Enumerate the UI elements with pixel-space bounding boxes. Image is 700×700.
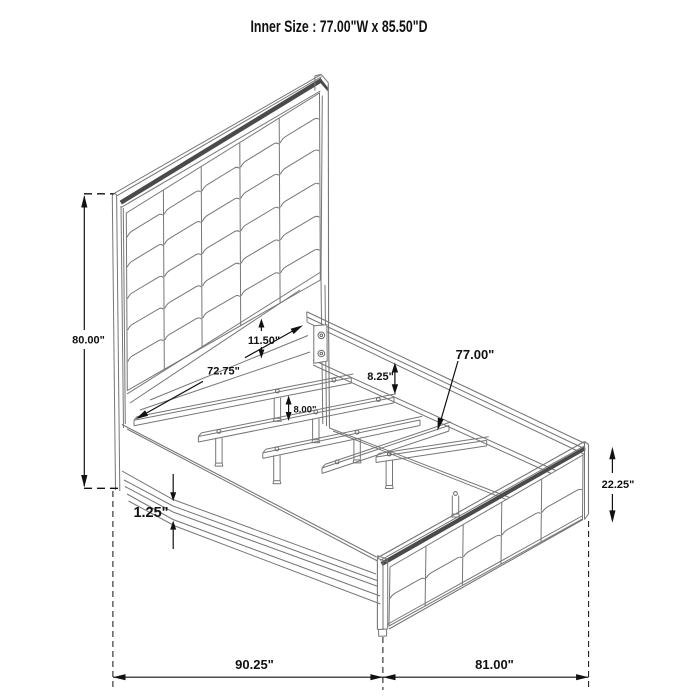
svg-text:80.00": 80.00" (72, 335, 105, 347)
svg-text:77.00": 77.00" (456, 347, 495, 362)
svg-text:81.00": 81.00" (475, 657, 514, 672)
svg-text:90.25": 90.25" (235, 657, 274, 672)
svg-text:11.50": 11.50" (248, 335, 280, 347)
svg-text:8.25": 8.25" (367, 371, 394, 383)
svg-text:22.25": 22.25" (602, 479, 635, 491)
svg-text:1.25": 1.25" (133, 505, 168, 521)
svg-text:Inner Size : 77.00"W x 85.50"D: Inner Size : 77.00"W x 85.50"D (251, 18, 428, 36)
svg-text:72.75": 72.75" (207, 366, 240, 378)
svg-text:8.00": 8.00" (294, 405, 317, 416)
